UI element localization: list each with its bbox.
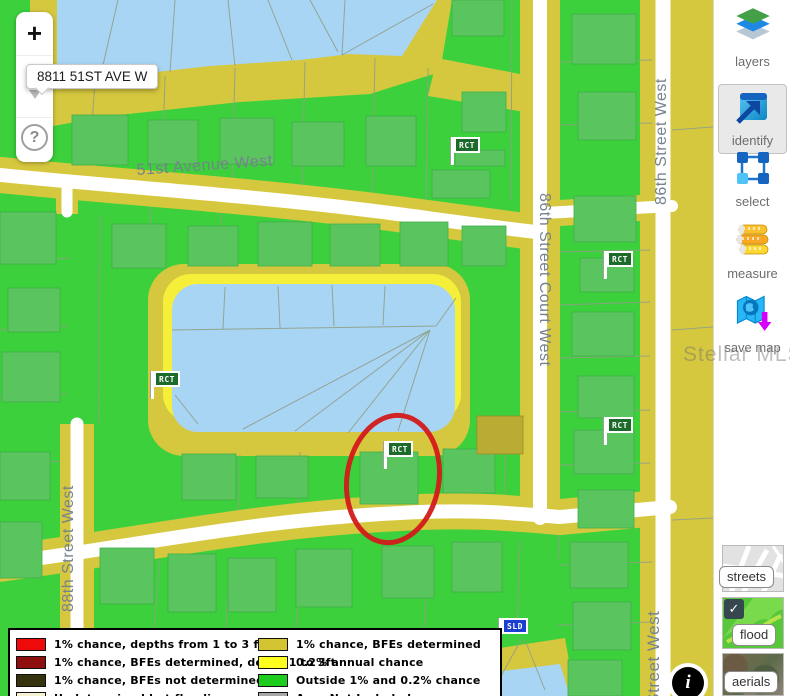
tool-layers[interactable]: layers [714,6,790,69]
tool-label: select [736,194,770,209]
tool-measure[interactable]: measure [714,222,790,281]
rct-flag: RCT [607,251,633,267]
checkmark-icon: ✓ [729,601,740,617]
legend-row: 1% chance, BFEs not determined [16,671,258,689]
layer-flood-label[interactable]: flood [732,624,776,646]
legend-swatch [258,692,288,696]
legend-swatch [258,638,288,651]
legend-swatch [16,638,46,651]
legend-row: 1% chance, depths from 1 to 3 ft [16,635,258,653]
flood-map-canvas[interactable] [0,0,713,696]
rct-flag: RCT [154,371,180,387]
identify-icon [735,89,771,130]
tool-label: measure [727,266,778,281]
legend-column: 1% chance, depths from 1 to 3 ft 1% chan… [16,635,258,696]
select-icon [735,150,771,191]
legend-swatch [258,674,288,687]
rct-marker[interactable]: RCT [150,371,186,401]
legend-swatch [16,674,46,687]
rct-flag: RCT [387,441,413,457]
flood-map-app: 51st Avenue West 86th Street Court West … [0,0,790,696]
tool-label: identify [732,133,773,148]
legend-row: Undetermined but flooding possible [16,689,258,696]
measure-icon [734,222,772,263]
legend-label: Area Not Included [296,692,411,696]
legend-swatch [16,692,46,696]
flood-legend: 1% chance, depths from 1 to 3 ft 1% chan… [8,628,502,696]
legend-row: 1% chance, BFEs determined, depth 1 to 3… [16,653,258,671]
rct-flag: RCT [454,137,480,153]
tool-label: layers [735,54,770,69]
rct-marker[interactable]: RCT [603,417,639,447]
save-map-icon [733,292,773,337]
layer-streets-label[interactable]: streets [719,566,774,588]
flood-checkbox[interactable]: ✓ [724,599,744,619]
legend-row: Area Not Included [258,689,500,696]
legend-swatch [16,656,46,669]
address-tooltip: 8811 51ST AVE W [26,64,158,89]
legend-column: 1% chance, BFEs determined 0.2% annual c… [258,635,500,696]
map-viewport[interactable]: 51st Avenue West 86th Street Court West … [0,0,713,696]
layer-aerials-label[interactable]: aerials [724,671,778,693]
tool-sidebar: layers identify [713,0,790,696]
rct-marker[interactable]: RCT [450,137,486,167]
tool-save-map[interactable]: save map [714,292,790,355]
legend-row: 0.2% annual chance [258,653,500,671]
legend-label: 1% chance, depths from 1 to 3 ft [54,638,264,651]
tool-label: save map [724,340,780,355]
rct-marker[interactable]: RCT [603,251,639,281]
tool-identify[interactable]: identify [718,84,787,154]
legend-label: Outside 1% and 0.2% chance [296,674,481,687]
legend-row: 1% chance, BFEs determined [258,635,500,653]
sld-flag: SLD [502,618,528,634]
rct-flag: RCT [607,417,633,433]
sld-marker[interactable]: SLD [498,618,534,648]
tool-select[interactable]: select [714,150,790,209]
zoom-in-button[interactable]: + [16,12,53,56]
info-button[interactable]: i [672,667,704,696]
layers-icon [733,6,773,51]
rct-marker[interactable]: RCT [383,441,419,471]
legend-label: 1% chance, BFEs determined [296,638,481,651]
legend-label: 0.2% annual chance [296,656,423,669]
legend-label: Undetermined but flooding possible [54,692,284,696]
legend-label: 1% chance, BFEs not determined [54,674,264,687]
legend-swatch [258,656,288,669]
help-button[interactable]: ? [21,124,48,151]
legend-row: Outside 1% and 0.2% chance [258,671,500,689]
